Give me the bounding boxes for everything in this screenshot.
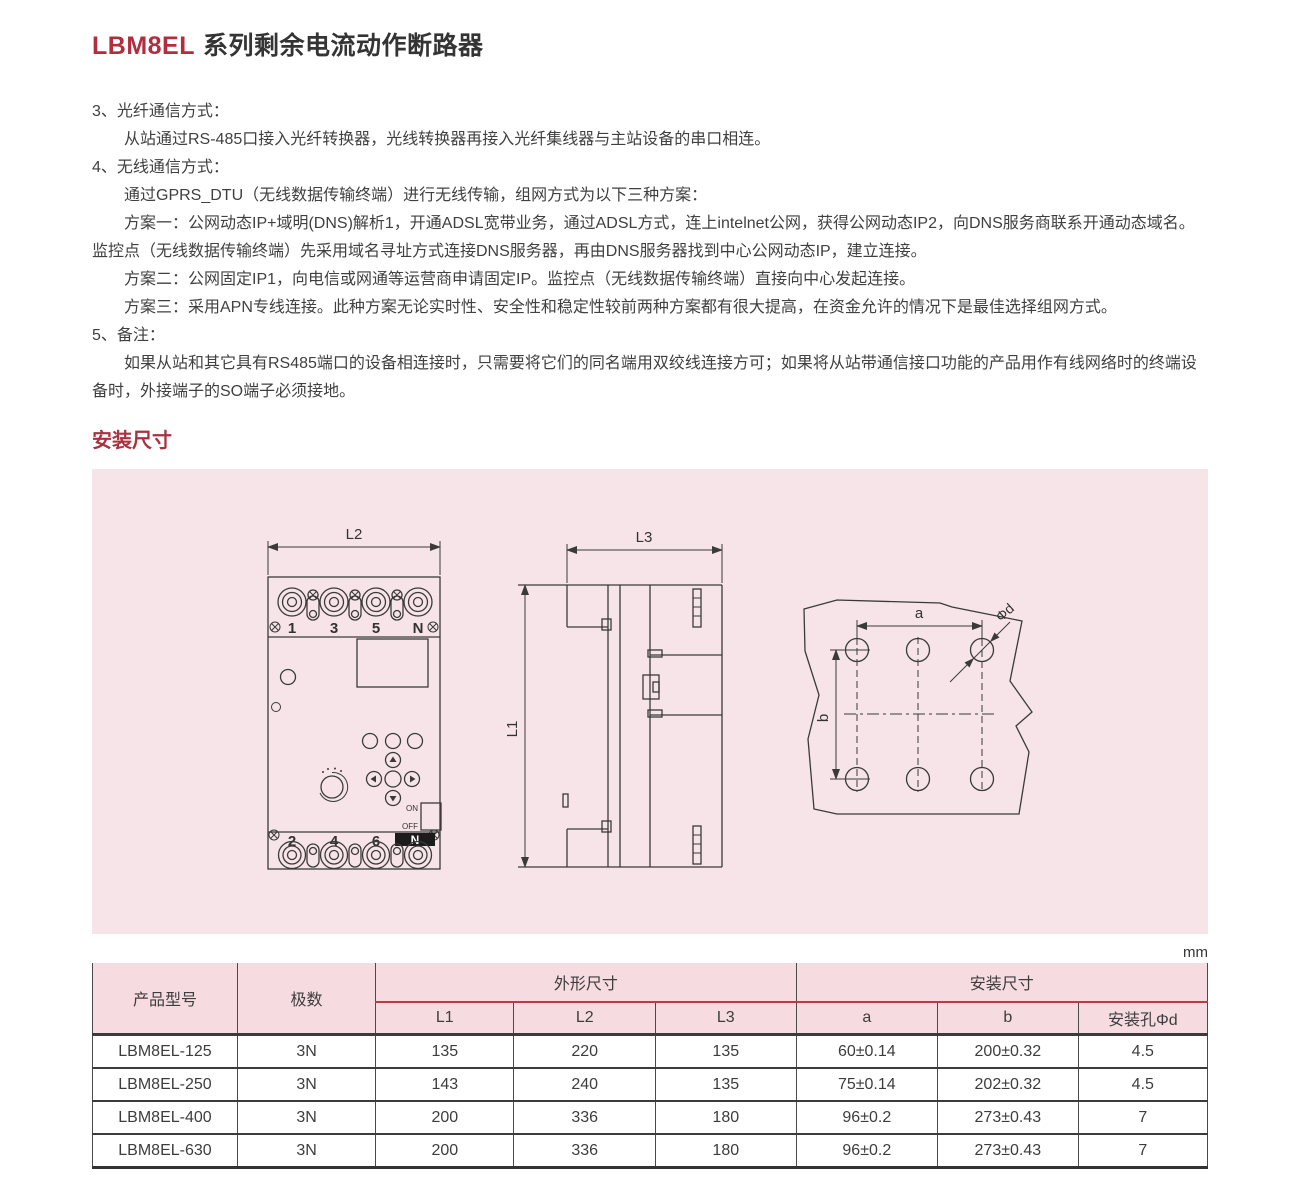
bottom-terminals — [279, 842, 432, 869]
table-cell: 200 — [376, 1101, 514, 1134]
page-title-model: LBM8EL — [92, 32, 195, 60]
table-cell: LBM8EL-250 — [93, 1068, 238, 1101]
table-row: LBM8EL-2503N14324013575±0.14202±0.324.5 — [93, 1068, 1208, 1101]
paragraph: 通过GPRS_DTU（无线数据传输终端）进行无线传输，组网方式为以下三种方案： — [92, 182, 1208, 210]
terminal-label-3: 3 — [330, 620, 338, 637]
top-terminals: 1 3 5 N — [278, 588, 432, 637]
table-unit-label: mm — [92, 944, 1208, 961]
catalog-page: LBM8EL系列剩余电流动作断路器 3、光纤通信方式：从站通过RS-485口接入… — [92, 0, 1208, 1169]
header-mounting-dimensions-group: 安装尺寸 — [796, 963, 1207, 1002]
table-cell: 4.5 — [1078, 1068, 1207, 1101]
switch-off-label: OFF — [402, 822, 418, 831]
header-l3: L3 — [656, 1002, 796, 1035]
dimension-spec-table: 产品型号 极数 外形尺寸 安装尺寸 L1 L2 L3 a b 安装孔Φd LBM… — [92, 963, 1208, 1169]
on-off-switch: ON OFF — [402, 803, 441, 831]
header-b: b — [938, 1002, 1078, 1035]
dim-label-l2: L2 — [346, 526, 363, 543]
paragraph: 方案二：公网固定IP1，向电信或网通等运营商申请固定IP。监控点（无线数据传输终… — [92, 266, 1208, 294]
rotary-knob — [320, 768, 348, 802]
dim-label-l1: L1 — [504, 721, 521, 738]
header-product-model: 产品型号 — [93, 963, 238, 1035]
page-title-text: 系列剩余电流动作断路器 — [203, 32, 484, 60]
table-cell: 200 — [376, 1134, 514, 1168]
paragraph: 方案三：采用APN专线连接。此种方案无论实时性、安全性和稳定性较前两种方案都有很… — [92, 294, 1208, 322]
table-cell: 3N — [237, 1134, 375, 1168]
side-view-drawing: L3 L1 — [504, 529, 722, 867]
header-l1: L1 — [376, 1002, 514, 1035]
table-cell: 3N — [237, 1068, 375, 1101]
terminal-label-5: 5 — [372, 620, 380, 637]
header-mounting-hole-diameter: 安装孔Φd — [1078, 1002, 1207, 1035]
table-cell: 96±0.2 — [796, 1134, 938, 1168]
table-cell: 143 — [376, 1068, 514, 1101]
installation-diagram-panel: L2 — [92, 469, 1208, 934]
table-cell: 202±0.32 — [938, 1068, 1078, 1101]
table-cell: 180 — [656, 1101, 796, 1134]
table-cell: 96±0.2 — [796, 1101, 938, 1134]
table-cell: 60±0.14 — [796, 1035, 938, 1069]
paragraph: 3、光纤通信方式： — [92, 98, 1208, 126]
table-cell: 336 — [514, 1134, 656, 1168]
table-cell: LBM8EL-125 — [93, 1035, 238, 1069]
table-cell: 273±0.43 — [938, 1134, 1078, 1168]
indicator-hole — [281, 670, 296, 685]
neutral-badge-label: N — [411, 833, 420, 847]
table-cell: 7 — [1078, 1134, 1207, 1168]
paragraph: 从站通过RS-485口接入光纤转换器，光线转换器再接入光纤集线器与主站设备的串口… — [92, 126, 1208, 154]
header-a: a — [796, 1002, 938, 1035]
table-cell: 273±0.43 — [938, 1101, 1078, 1134]
mounting-holes-drawing: a b Φd — [804, 600, 1032, 814]
table-cell: 135 — [376, 1035, 514, 1069]
table-cell: 4.5 — [1078, 1035, 1207, 1069]
table-row: LBM8EL-1253N13522013560±0.14200±0.324.5 — [93, 1035, 1208, 1069]
page-title: LBM8EL系列剩余电流动作断路器 — [92, 26, 1208, 62]
dim-label-b: b — [815, 714, 832, 722]
table-group-header-row: 产品型号 极数 外形尺寸 安装尺寸 — [93, 963, 1208, 1002]
dim-label-l3: L3 — [636, 529, 653, 546]
table-cell: 220 — [514, 1035, 656, 1069]
table-cell: LBM8EL-630 — [93, 1134, 238, 1168]
switch-on-label: ON — [406, 804, 418, 813]
header-poles: 极数 — [237, 963, 375, 1035]
terminal-label-1: 1 — [288, 620, 296, 637]
navigation-buttons — [367, 753, 420, 806]
paragraph: 方案一：公网动态IP+域明(DNS)解析1，开通ADSL宽带业务，通过ADSL方… — [92, 210, 1208, 266]
table-cell: 200±0.32 — [938, 1035, 1078, 1069]
table-cell: 75±0.14 — [796, 1068, 938, 1101]
paragraph: 5、备注： — [92, 322, 1208, 350]
header-l2: L2 — [514, 1002, 656, 1035]
table-cell: 3N — [237, 1035, 375, 1069]
body-text: 3、光纤通信方式：从站通过RS-485口接入光纤转换器，光线转换器再接入光纤集线… — [92, 98, 1208, 406]
table-cell: 180 — [656, 1134, 796, 1168]
table-row: LBM8EL-4003N20033618096±0.2273±0.437 — [93, 1101, 1208, 1134]
table-cell: 135 — [656, 1035, 796, 1069]
table-cell: 135 — [656, 1068, 796, 1101]
paragraph: 4、无线通信方式： — [92, 154, 1208, 182]
header-outline-dimensions-group: 外形尺寸 — [376, 963, 796, 1002]
table-cell: 240 — [514, 1068, 656, 1101]
table-cell: 3N — [237, 1101, 375, 1134]
dim-label-a: a — [915, 605, 924, 622]
indicator-lamps — [363, 734, 423, 749]
front-view-drawing: L2 — [268, 526, 441, 869]
paragraph: 如果从站和其它具有RS485端口的设备相连接时，只需要将它们的同名端用双绞线连接… — [92, 350, 1208, 406]
display-window — [357, 639, 428, 687]
dim-label-phi-d: Φd — [992, 600, 1017, 625]
installation-diagram: L2 — [92, 469, 1208, 934]
section-heading-installation-dimensions: 安装尺寸 — [92, 424, 1208, 453]
table-cell: 336 — [514, 1101, 656, 1134]
table-cell: LBM8EL-400 — [93, 1101, 238, 1134]
table-row: LBM8EL-6303N20033618096±0.2273±0.437 — [93, 1134, 1208, 1168]
terminal-label-n-top: N — [413, 620, 424, 637]
table-cell: 7 — [1078, 1101, 1207, 1134]
